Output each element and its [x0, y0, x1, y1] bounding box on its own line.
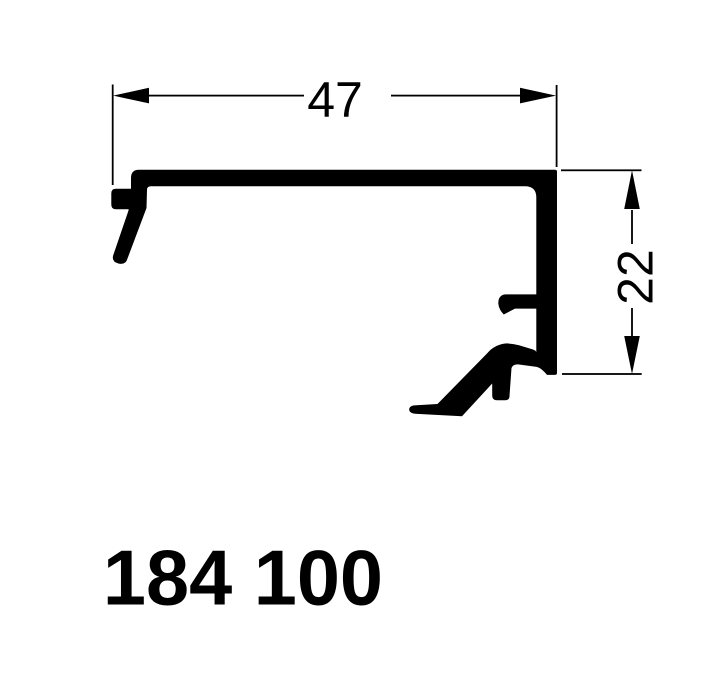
- svg-text:47: 47: [307, 72, 363, 128]
- svg-text:22: 22: [608, 249, 664, 305]
- svg-text:184 100: 184 100: [103, 536, 383, 622]
